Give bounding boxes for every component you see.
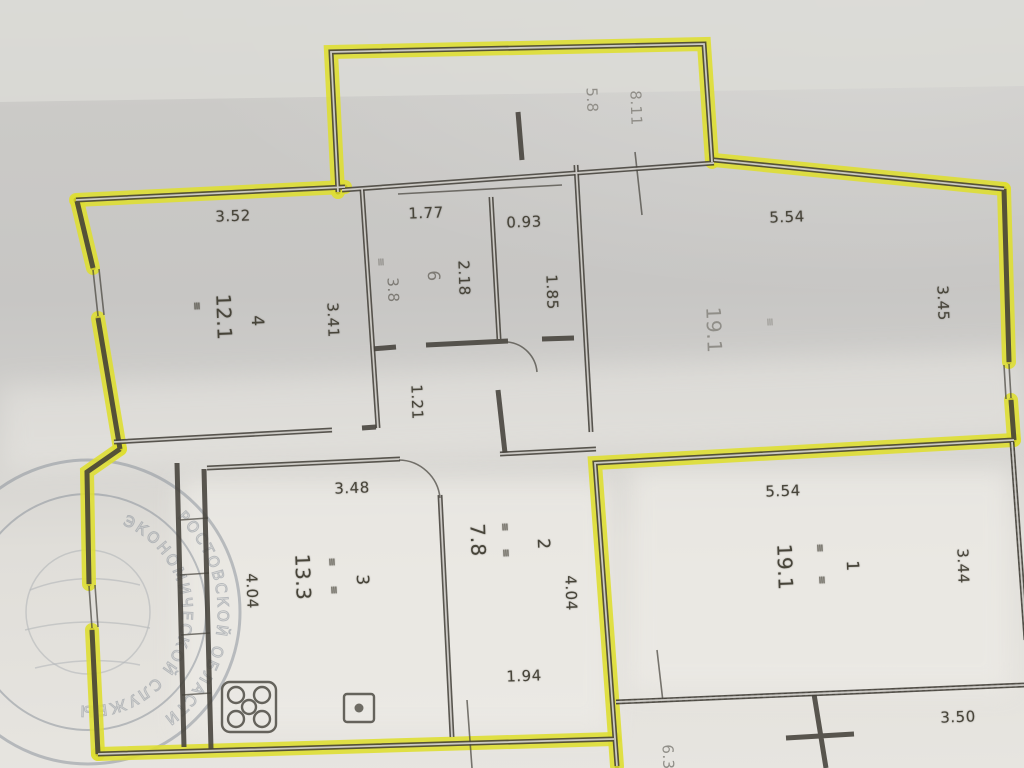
room6-area: 3.8	[384, 277, 403, 303]
floorplan-drawing: РОСТОВСКОЙ ОБЛАСТИ ЭКОНОМИЧЕСКОЙ СЛУЖБЫ	[0, 0, 1024, 768]
equals-mark: ≡	[499, 548, 512, 558]
dim-neighbor-bottom: 3.50	[940, 707, 976, 726]
room4-area: 12.1	[211, 293, 237, 340]
balcony-dim-b: 8.11	[626, 90, 645, 126]
dim-room-top-right-depth: 3.45	[933, 285, 952, 321]
room1-number: 1	[842, 560, 862, 572]
dim-room-top-right-width: 5.54	[769, 207, 805, 226]
room6-number: 6	[423, 270, 443, 282]
room4-number: 4	[247, 315, 267, 327]
equals-mark: ≡	[815, 575, 828, 585]
room-top-right-area: 19.1	[701, 306, 727, 353]
dim-room1-width: 5.54	[765, 481, 801, 500]
dim-room6-width: 1.77	[408, 203, 444, 222]
equals-mark: ≡	[813, 543, 826, 553]
equals-mark: ≡	[763, 317, 776, 327]
stove-icon	[222, 682, 276, 732]
dim-room1-depth: 3.44	[953, 548, 972, 584]
dim-room4-width: 3.52	[215, 206, 251, 225]
room3-number: 3	[352, 574, 372, 586]
dim-wc-depth: 1.85	[542, 274, 561, 310]
equals-mark: ≡	[190, 301, 203, 311]
dim-wc-width: 0.93	[506, 212, 542, 231]
dim-room6-depth: 2.18	[454, 260, 473, 296]
dim-room2-depth: 4.04	[561, 575, 580, 611]
equals-mark: ≡	[374, 257, 387, 267]
sink-icon	[344, 694, 374, 722]
room1-area: 19.1	[772, 543, 798, 590]
balcony-dim-a: 5.8	[583, 87, 602, 113]
dim-room3-width: 3.48	[334, 478, 370, 497]
equals-mark: ≡	[325, 557, 338, 567]
floorplan-photo: РОСТОВСКОЙ ОБЛАСТИ ЭКОНОМИЧЕСКОЙ СЛУЖБЫ	[0, 0, 1024, 768]
dim-room3-depth: 4.04	[242, 573, 261, 609]
dim-hall: 1.21	[407, 384, 426, 420]
equals-mark: ≡	[498, 522, 511, 532]
room3-area: 13.3	[290, 553, 316, 600]
room2-number: 2	[533, 538, 553, 550]
equals-mark: ≡	[327, 585, 340, 595]
room2-area: 7.8	[465, 523, 490, 557]
dim-neighbor-bottom-cut: 6.3	[659, 744, 678, 768]
dim-room2-width: 1.94	[506, 666, 542, 685]
dim-room4-depth: 3.41	[323, 302, 342, 338]
